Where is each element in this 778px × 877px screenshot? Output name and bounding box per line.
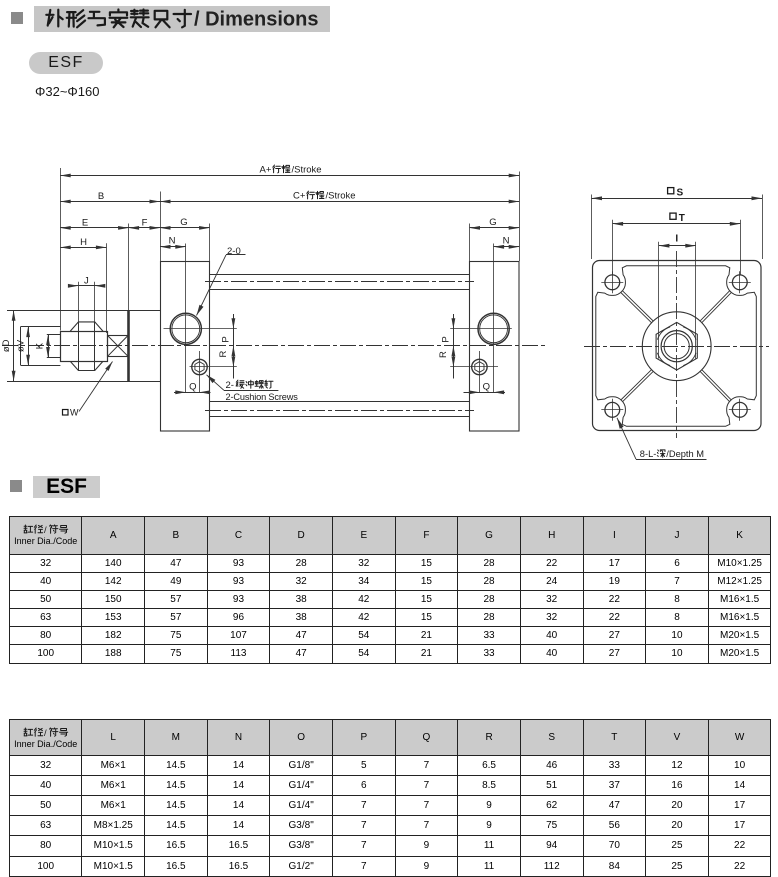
svg-text:G: G [180,217,187,228]
svg-text:I: I [675,234,678,245]
svg-text:E: E [82,217,88,228]
svg-text:øD: øD [1,339,12,352]
svg-text:8-L-: 8-L- [640,449,657,459]
svg-text:T: T [679,213,685,224]
svg-text:/: / [44,525,47,535]
svg-text:A+: A+ [260,164,272,175]
svg-text:/Stroke: /Stroke [326,190,356,201]
svg-text:/Stroke: /Stroke [292,164,322,175]
svg-text:R: R [218,350,229,357]
svg-text:G: G [489,217,496,228]
svg-text:N: N [503,236,510,247]
svg-text:B: B [98,191,104,202]
svg-text:H: H [80,237,87,248]
svg-text:R: R [438,351,449,358]
svg-text:P: P [221,336,232,342]
svg-text:K: K [35,342,46,349]
svg-text:øV: øV [16,339,27,352]
svg-text:2-Cushion Screws: 2-Cushion Screws [226,392,299,402]
svg-text:2-: 2- [226,380,234,391]
svg-text:/Depth M: /Depth M [666,449,704,459]
svg-text:F: F [142,217,148,228]
svg-text:Q: Q [483,381,490,392]
svg-text:J: J [84,275,89,286]
svg-text:N: N [169,236,176,247]
svg-text:P: P [441,336,452,342]
svg-text:Q: Q [189,381,196,392]
svg-text:2-0: 2-0 [227,246,241,257]
svg-text:/: / [44,728,47,738]
svg-text:C+: C+ [293,190,306,201]
svg-text:W: W [70,408,79,418]
svg-text:S: S [677,187,684,198]
